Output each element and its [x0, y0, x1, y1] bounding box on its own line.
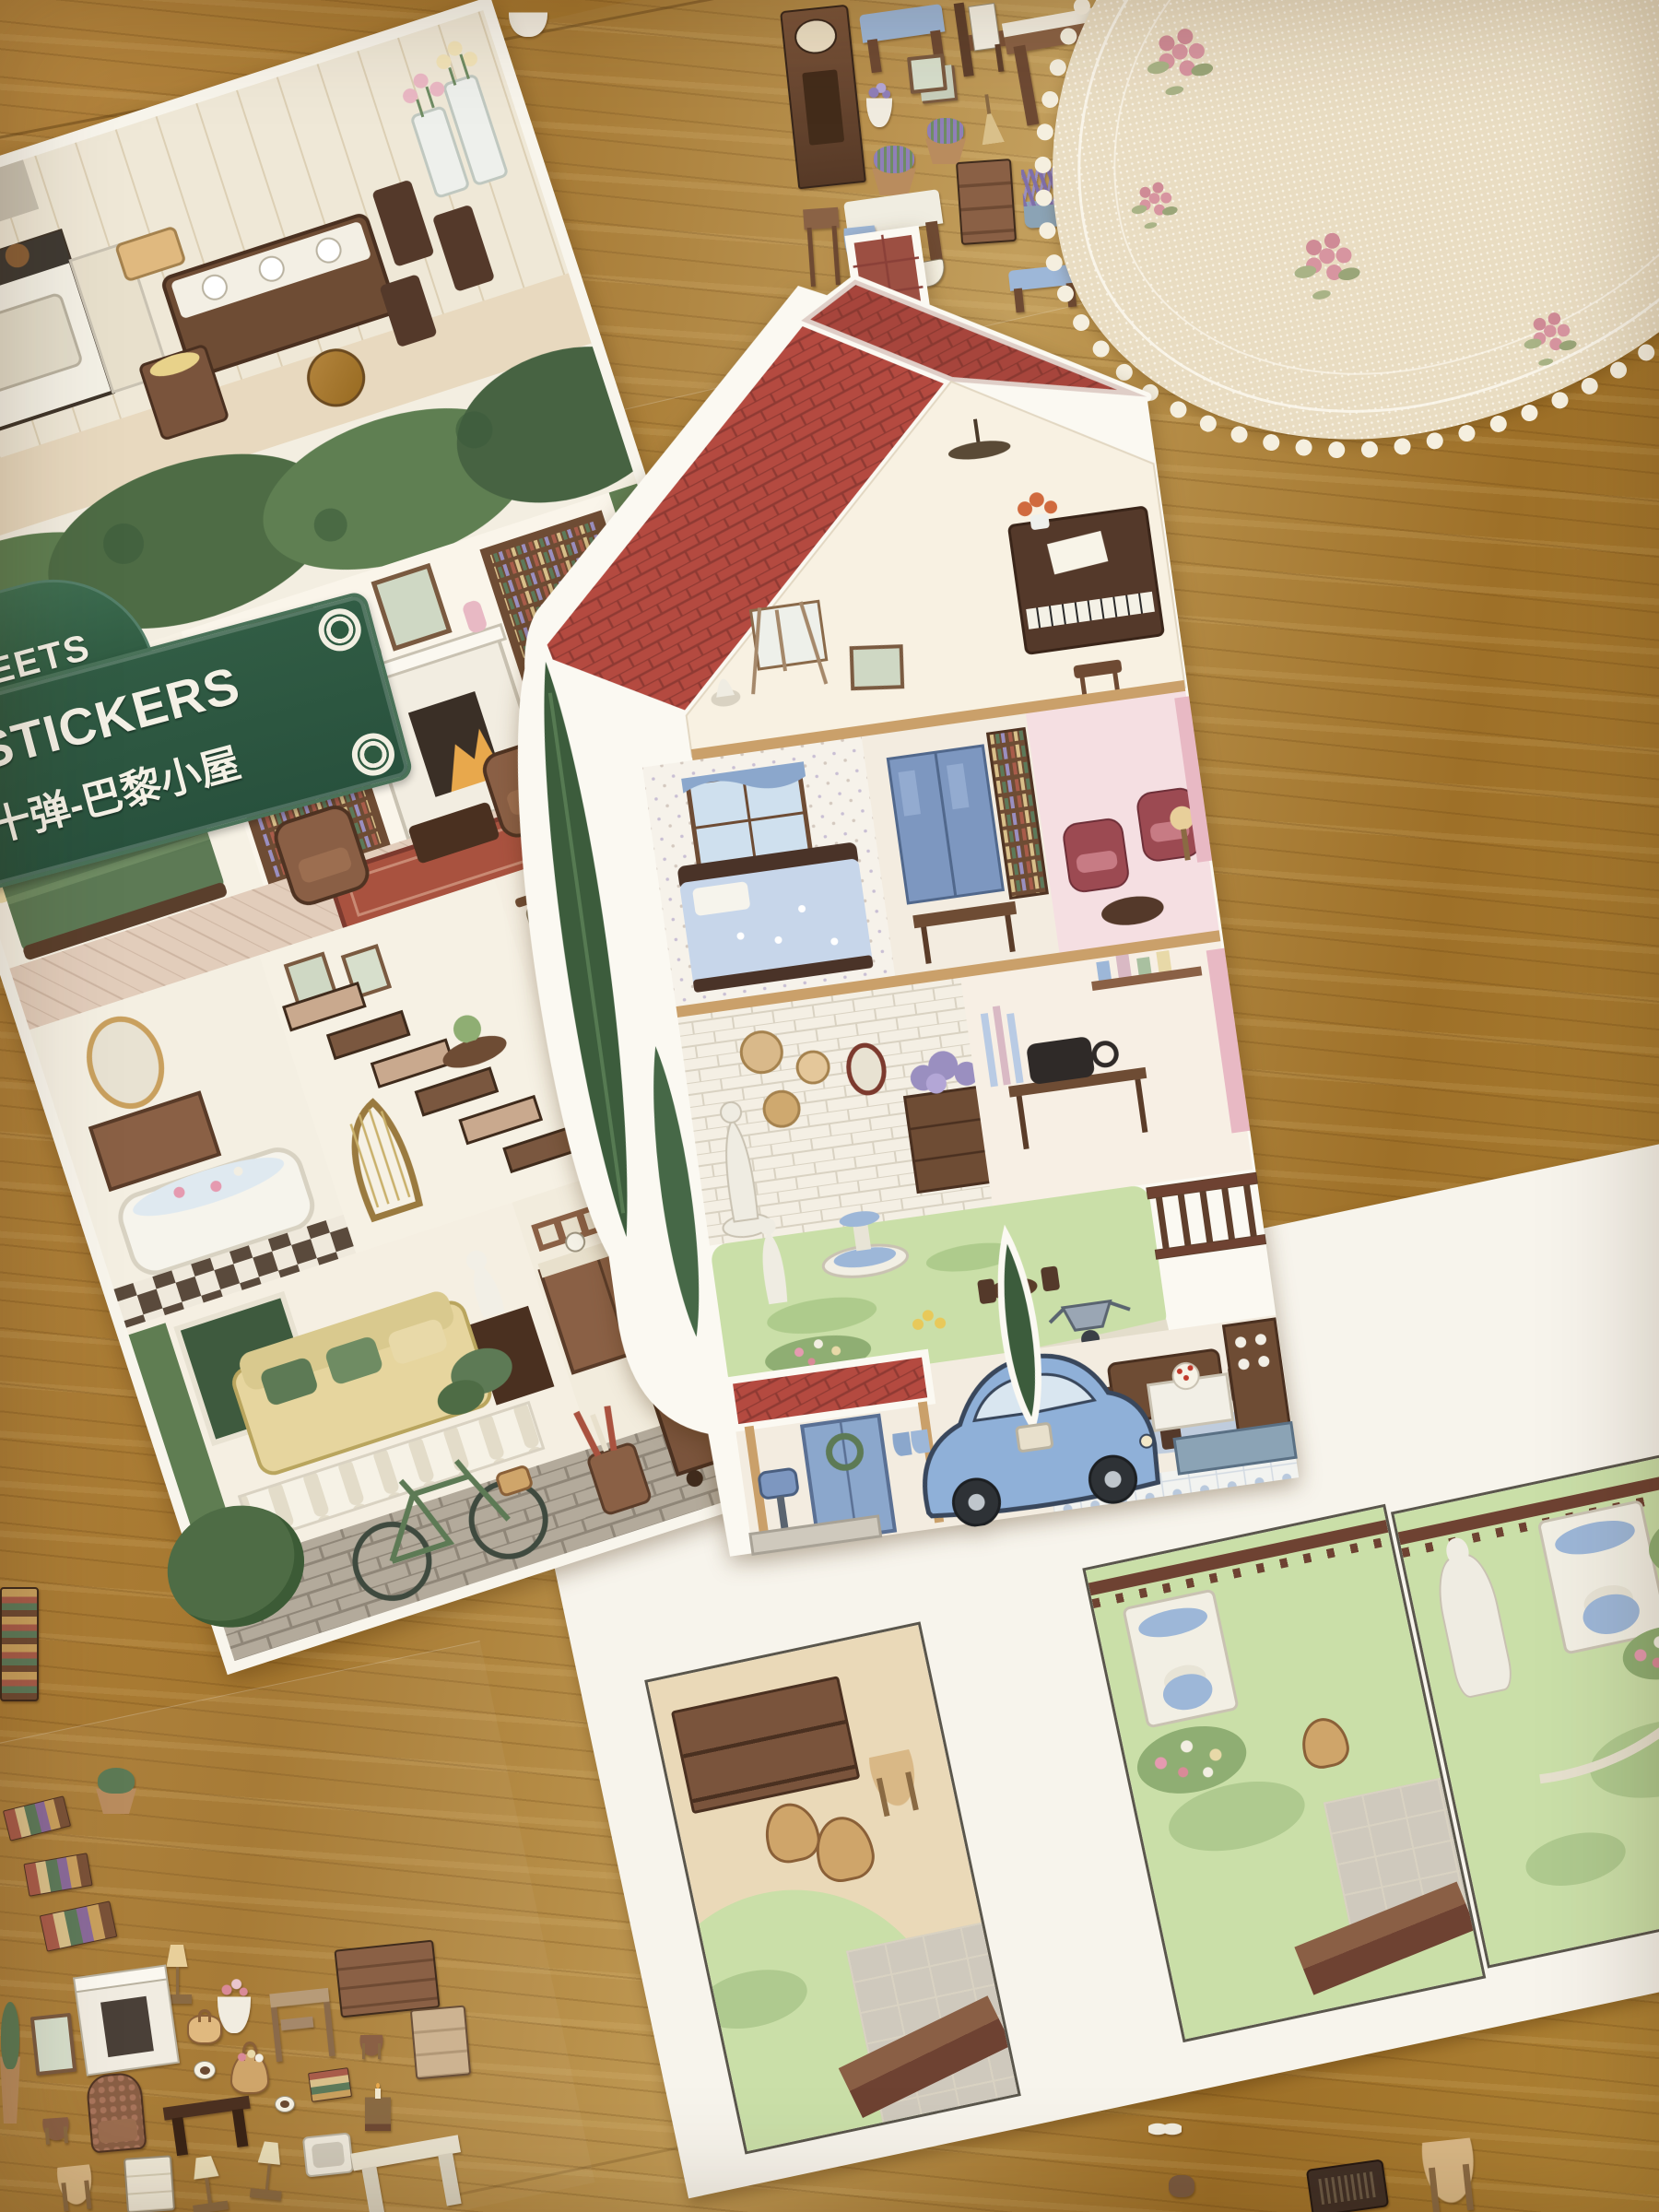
- vase-flowers-sticker: [218, 1978, 251, 2033]
- terrace-railing: [1147, 1172, 1266, 1259]
- step-chair-sticker: [269, 1988, 335, 2062]
- books-flat-sticker: [308, 2067, 352, 2102]
- flower-basket-sticker: [230, 2052, 269, 2094]
- embroidered-flower-icon: [1524, 304, 1576, 357]
- sink-sticker: [302, 2132, 354, 2177]
- potted-plant-sticker: [0, 2002, 20, 2124]
- broom-sticker: [971, 92, 1007, 146]
- pink-sitting-room: [1026, 690, 1222, 956]
- teacup-sticker: [275, 2096, 295, 2112]
- fireplace-mantel-sticker: [73, 1964, 180, 2076]
- tv-console-sticker: [410, 2006, 471, 2080]
- teacup-sticker: [194, 2061, 216, 2079]
- shoes-sticker: [1148, 2116, 1182, 2142]
- dressing-room: [677, 975, 1013, 1246]
- blue-bedroom: [642, 736, 896, 1010]
- vase-flowers-sticker: [866, 83, 892, 127]
- picture-frames-sticker: [907, 53, 947, 94]
- cabinet-sticker: [334, 1940, 440, 2018]
- garden-panel: [644, 1621, 1021, 2154]
- sconce-sticker: [186, 2155, 229, 2212]
- embroidered-flower-icon: [1294, 223, 1359, 288]
- radio-sticker: [1306, 2159, 1389, 2212]
- footstool-sticker: [358, 2035, 385, 2059]
- stool-sticker: [1416, 2137, 1484, 2212]
- candelabra-sticker: [365, 2083, 391, 2131]
- book-stack-sticker: [23, 1853, 92, 1897]
- bookshelf-sticker: [0, 1587, 39, 1701]
- stool-sticker: [53, 2164, 99, 2212]
- embroidered-flower-icon: [1147, 18, 1212, 84]
- photo-of-sticker-sheets-on-table: SHEETS NE STICKERS 海第十弹-巴黎小屋: [0, 0, 1659, 2212]
- sconce-sticker: [250, 2140, 287, 2200]
- embroidered-flower-icon: [1131, 175, 1177, 221]
- footstool-sticker: [40, 2117, 73, 2145]
- picture-frame-sticker: [30, 2013, 76, 2076]
- lavender-pot-sticker: [872, 146, 916, 195]
- white-cabinet-sticker: [124, 2155, 175, 2212]
- potted-plant-sticker: [96, 1768, 136, 1814]
- lavender-pot-sticker: [925, 118, 966, 164]
- sewing-room: [960, 941, 1255, 1206]
- coffee-table-sticker: [163, 2096, 256, 2158]
- book-stack-sticker: [3, 1795, 71, 1841]
- trinket-sticker: [1169, 2175, 1194, 2197]
- book-stack-sticker: [40, 1900, 118, 1951]
- armchair-sticker: [85, 2072, 147, 2154]
- white-desk-sticker: [350, 2135, 469, 2212]
- croissant-sticker: [187, 2015, 222, 2044]
- study: [862, 713, 1060, 979]
- grandfather-clock-sticker: [780, 5, 866, 190]
